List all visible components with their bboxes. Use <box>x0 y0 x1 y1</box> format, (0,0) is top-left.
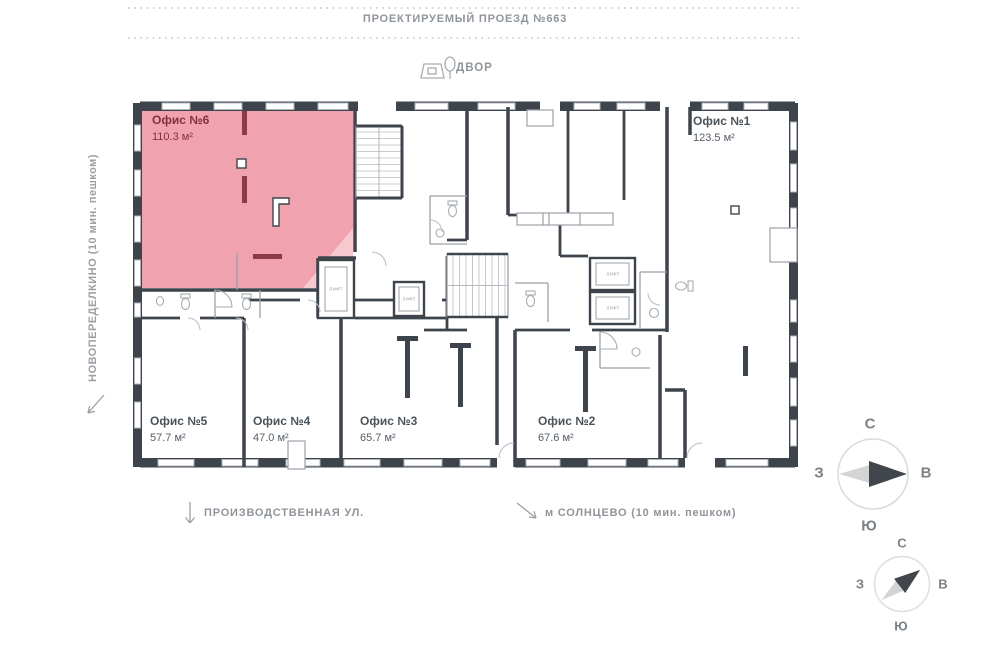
office-4-name: Офис №4 <box>253 414 310 429</box>
bottom-street-label: ПРОИЗВОДСТВЕННАЯ УЛ. <box>204 507 364 519</box>
left-street-arrow <box>88 395 104 413</box>
metro-label: м СОЛНЦЕВО (10 мин. пешком) <box>545 507 736 519</box>
compass-large <box>838 439 908 509</box>
office-2-area: 67.6 м² <box>538 431 595 446</box>
lift-label-3: ЛИФТ <box>606 272 619 277</box>
office-5-name: Офис №5 <box>150 414 207 429</box>
office-5-area: 57.7 м² <box>150 431 207 446</box>
lift-label-1: ЛИФТ <box>329 287 342 292</box>
compass-small-north: С <box>897 536 906 551</box>
compass-small <box>875 557 930 612</box>
office-4-label[interactable]: Офис №4 47.0 м² <box>253 414 310 446</box>
compass-large-south: Ю <box>861 518 876 535</box>
yard-label: ДВОР <box>456 62 493 74</box>
compass-small-south: Ю <box>894 619 907 634</box>
compass-large-tail <box>839 464 873 484</box>
office-3-label[interactable]: Офис №3 65.7 м² <box>360 414 417 446</box>
office-1-label[interactable]: Офис №1 123.5 м² <box>693 114 750 146</box>
office-2-name: Офис №2 <box>538 414 595 429</box>
stairs-center <box>447 254 508 317</box>
metro-arrow <box>517 503 536 518</box>
columns <box>397 336 748 412</box>
compass-small-east: В <box>938 577 947 592</box>
floorplan-graphic <box>0 0 983 659</box>
floorplan-page: ПРОЕКТИРУЕМЫЙ ПРОЕЗД №663 ДВОР НОВОПЕРЕД… <box>0 0 983 659</box>
compass-large-north: С <box>865 416 876 433</box>
top-street-label: ПРОЕКТИРУЕМЫЙ ПРОЕЗД №663 <box>130 13 800 25</box>
yard-icon <box>421 57 455 79</box>
bottom-street-arrow <box>186 502 195 523</box>
office-3-name: Офис №3 <box>360 414 417 429</box>
office-6-label[interactable]: Офис №6 110.3 м² <box>152 113 209 145</box>
lift-label-4: ЛИФТ <box>606 306 619 311</box>
left-street-label: НОВОПЕРЕДЕЛКИНО (10 мин. пешком) <box>87 154 99 382</box>
office-4-area: 47.0 м² <box>253 431 310 446</box>
office-1-name: Офис №1 <box>693 114 750 129</box>
office-1-area: 123.5 м² <box>693 131 750 146</box>
stairs-top <box>356 126 402 198</box>
compass-small-west: З <box>856 577 864 592</box>
office-5-label[interactable]: Офис №5 57.7 м² <box>150 414 207 446</box>
compass-large-west: З <box>814 465 823 482</box>
office-6-name: Офис №6 <box>152 113 209 128</box>
office-6-area: 110.3 м² <box>152 130 209 145</box>
office-3-area: 65.7 м² <box>360 431 417 446</box>
lift-label-2: ЛИФТ <box>402 297 415 302</box>
compass-large-needle <box>869 461 907 487</box>
compass-large-east: В <box>921 465 932 482</box>
office-2-label[interactable]: Офис №2 67.6 м² <box>538 414 595 446</box>
